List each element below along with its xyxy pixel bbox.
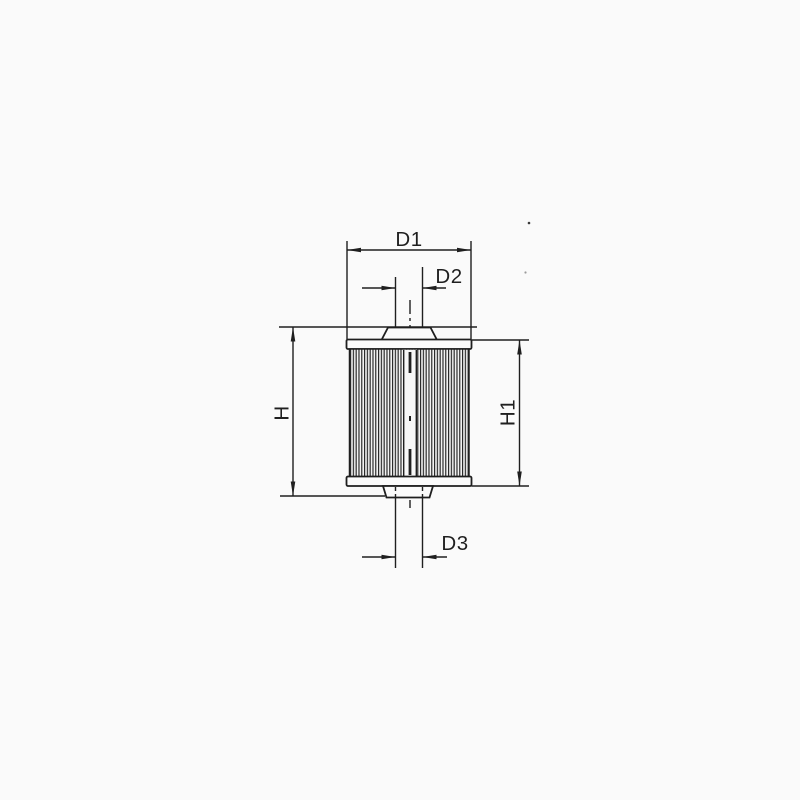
drawing-page: D1 D2 (0, 0, 800, 800)
h-arrow-top (291, 327, 296, 342)
d3-arrow-right (423, 555, 437, 560)
filter-element (347, 328, 472, 498)
d2-label: D2 (435, 265, 462, 288)
h-label: H (271, 405, 294, 420)
filter-bottom-neck (383, 486, 433, 498)
d1-label: D1 (395, 228, 422, 251)
scan-specks (524, 222, 530, 274)
filter-top-neck (382, 328, 438, 341)
h1-arrow-top (517, 340, 522, 355)
d1-arrow-left (347, 248, 361, 253)
filter-top-flange (347, 340, 472, 350)
h1-label: H1 (497, 399, 520, 426)
d1-arrow-right (457, 248, 471, 253)
filter-bottom-flange (347, 477, 472, 487)
h1-arrow-bottom (517, 472, 522, 487)
d3-arrow-left (382, 555, 396, 560)
d3-label: D3 (441, 532, 468, 555)
d2-arrow-left (382, 286, 396, 291)
dim-h1: H1 (472, 340, 530, 486)
filter-core-channel (403, 350, 417, 477)
h-arrow-bottom (291, 482, 296, 497)
d2-arrow-right (423, 286, 437, 291)
dim-d3: D3 (362, 487, 469, 568)
filter-dimension-drawing: D1 D2 (0, 0, 800, 800)
